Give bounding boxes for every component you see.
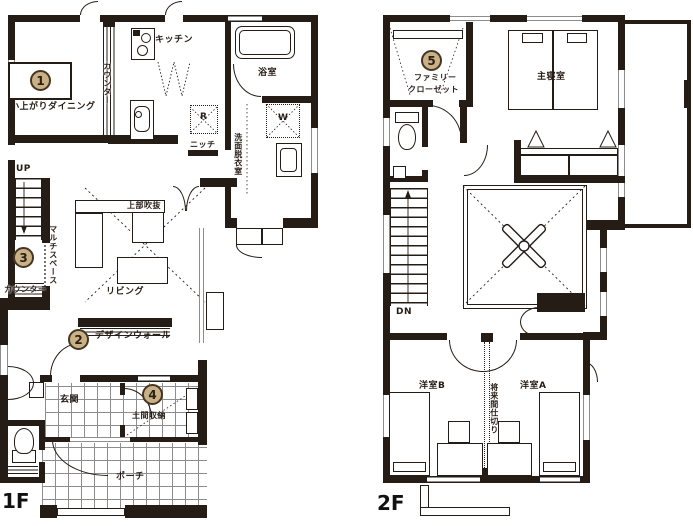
toilet-controller <box>393 166 406 179</box>
window <box>383 215 390 273</box>
room-label-doma: 土間収納 <box>132 412 166 421</box>
toilet-bowl <box>398 124 416 150</box>
room-label-room-a: 洋室A <box>520 382 546 392</box>
wall <box>283 218 318 228</box>
room-label-porch: ポーチ <box>116 473 145 483</box>
room-label-entrance: 玄関 <box>60 396 79 406</box>
wall <box>8 15 80 22</box>
wall <box>39 462 45 483</box>
living-side-wall <box>199 228 204 343</box>
label-upper-void: 上部吹抜 <box>127 202 161 211</box>
room-label-kitchen: キッチン <box>155 36 193 46</box>
sofa-seat <box>75 213 103 268</box>
burner <box>141 33 151 43</box>
window <box>427 477 480 482</box>
toilet-tank <box>395 112 419 123</box>
window <box>583 395 590 440</box>
desk-room-a <box>487 443 532 476</box>
wall <box>514 176 625 183</box>
room-label-multi-space: マルチスペース <box>48 225 57 285</box>
porch-step <box>57 508 125 516</box>
niche-wall <box>188 150 218 156</box>
roof-outline <box>420 507 510 516</box>
floor-plan-canvas: 小上がりダイニング キッチン カウンター 浴室 洗面脱衣室 ニッチ R W UP… <box>0 0 693 526</box>
storage-box <box>236 228 262 245</box>
label-stairs-down: DN <box>396 308 412 318</box>
room-label-family-closet-1: ファミリー <box>414 74 457 83</box>
wall <box>39 420 45 450</box>
porch-corner <box>125 505 207 518</box>
sofa-chaise <box>132 212 164 243</box>
label-design-wall: デザインウォール <box>95 332 171 342</box>
room-label-master-bedroom: 主寝室 <box>537 73 566 83</box>
chair-room-a <box>498 421 520 443</box>
dresser-lamp-right <box>600 131 616 147</box>
stairs-2f <box>390 188 428 306</box>
badge-1: 1 <box>30 70 51 91</box>
label-kitchen-counter: カウンター <box>102 62 111 105</box>
badge-5: 5 <box>421 50 442 71</box>
room-label-laundry: 洗面脱衣室 <box>233 133 242 176</box>
sink-basin <box>134 106 150 132</box>
design-wall-bar <box>78 318 172 327</box>
kitchen-cabinet-zigzag <box>158 62 190 96</box>
void-atrium <box>463 185 587 309</box>
closet-divider <box>568 155 570 176</box>
balcony-pillar <box>684 80 691 108</box>
bedroom-counter <box>520 148 618 155</box>
floor-2-label: 2F <box>377 491 405 515</box>
stairs-1f <box>15 178 42 240</box>
wall <box>103 22 115 27</box>
badge-2: 2 <box>68 329 89 350</box>
wall <box>198 360 207 445</box>
window <box>450 16 490 21</box>
badge-4: 4 <box>142 384 163 405</box>
wall <box>466 22 473 107</box>
wall <box>8 135 108 143</box>
wall <box>311 15 318 228</box>
burner <box>137 45 148 56</box>
dresser-lamp-left <box>528 131 544 147</box>
wall <box>103 138 115 143</box>
window <box>311 128 318 173</box>
window <box>527 16 582 21</box>
wall <box>200 178 237 187</box>
label-fridge: R <box>200 113 207 123</box>
wall <box>40 375 52 382</box>
wall <box>383 333 447 340</box>
porch-corner <box>40 505 57 518</box>
stove-panel <box>133 30 140 36</box>
pillow <box>543 462 576 472</box>
void-inner-line <box>467 189 583 305</box>
window <box>0 345 8 375</box>
window <box>228 16 262 21</box>
wall <box>100 15 165 22</box>
hall-closet-wall <box>537 293 585 312</box>
window <box>383 118 390 146</box>
wall <box>618 15 625 230</box>
wall <box>587 220 625 230</box>
wall <box>0 310 8 483</box>
floor-1-label: 1F <box>2 489 30 513</box>
wall <box>262 96 318 103</box>
doma-shelf <box>186 412 198 434</box>
wall <box>225 96 231 150</box>
living-table <box>117 257 168 284</box>
sink-drain <box>135 111 142 118</box>
label-stairs-up: UP <box>16 165 31 175</box>
wall <box>225 22 231 96</box>
badge-3: 3 <box>13 247 34 268</box>
closet-pipe <box>393 30 463 39</box>
toilet-bowl <box>14 428 34 454</box>
balcony-rail <box>687 20 691 228</box>
label-washer: W <box>278 114 288 124</box>
room-label-living: リビング <box>106 288 144 298</box>
room-label-dining: 小上がりダイニング <box>10 103 96 113</box>
window <box>540 477 580 482</box>
room-label-bath: 浴室 <box>258 69 277 79</box>
living-cabinet <box>206 292 224 330</box>
window <box>600 248 607 272</box>
balcony-door <box>618 145 625 197</box>
wall <box>514 140 521 183</box>
wall <box>383 15 450 22</box>
balcony-rail <box>625 224 691 228</box>
room-label-room-b: 洋室B <box>419 382 445 392</box>
label-counter: カウンター <box>4 286 47 295</box>
wall <box>225 218 237 228</box>
bathtub-inner <box>239 30 291 55</box>
wall <box>8 160 15 303</box>
doma-shelf <box>186 388 198 410</box>
desk-room-b <box>437 443 483 476</box>
pillow <box>393 462 426 472</box>
label-niche: ニッチ <box>190 141 216 150</box>
wall <box>583 332 607 340</box>
balcony-rail <box>625 20 691 24</box>
chair-room-b <box>448 421 470 443</box>
window <box>618 70 625 108</box>
window <box>138 376 170 381</box>
pillow <box>567 33 587 43</box>
wall <box>0 298 47 310</box>
wall <box>490 15 527 22</box>
room-label-family-closet-2: クローゼット <box>408 86 459 95</box>
pillow <box>522 33 543 43</box>
toilet-step <box>6 466 38 476</box>
washbasin-bowl <box>280 148 297 172</box>
storage-box <box>262 228 283 245</box>
label-future-partition: 将来間仕切り <box>489 383 498 434</box>
window <box>600 292 607 316</box>
wall <box>600 230 607 332</box>
